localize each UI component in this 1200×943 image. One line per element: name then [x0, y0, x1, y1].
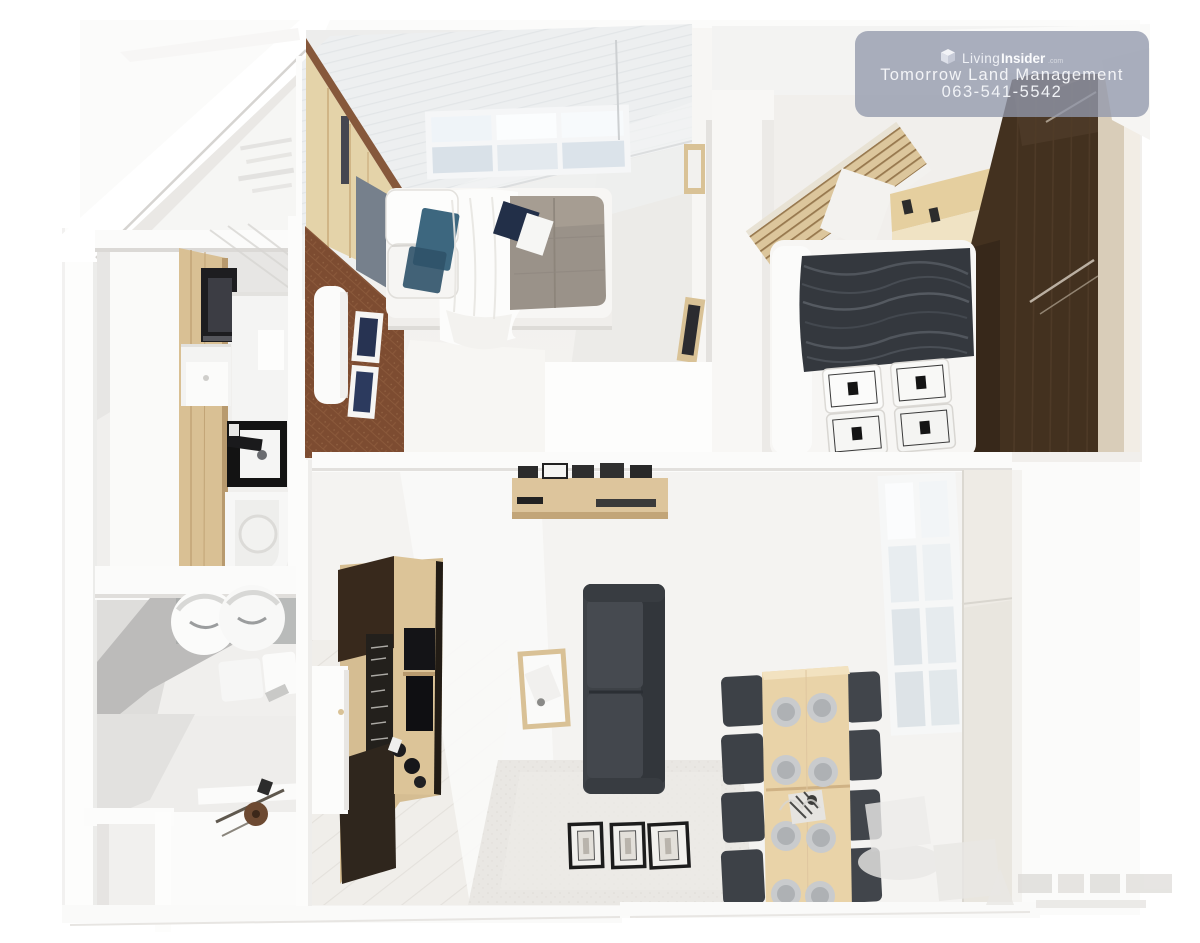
svg-text:.com: .com [1048, 58, 1063, 65]
svg-text:Insider: Insider [1001, 51, 1046, 66]
svg-text:063-541-5542: 063-541-5542 [942, 83, 1063, 101]
svg-text:Tomorrow Land Management: Tomorrow Land Management [880, 66, 1123, 84]
svg-text:Living: Living [962, 51, 1000, 66]
